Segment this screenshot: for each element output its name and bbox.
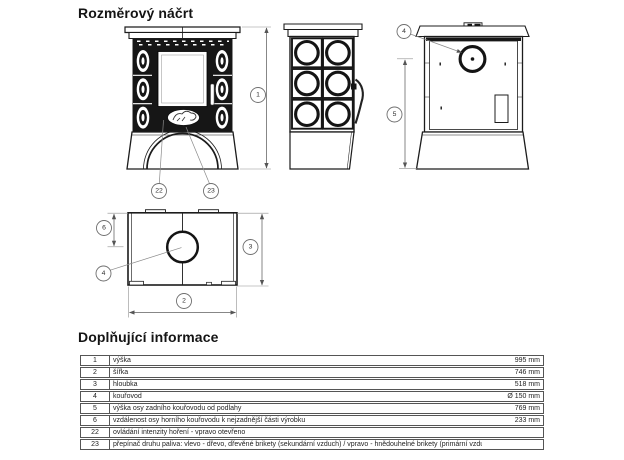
row-value: 746 mm	[482, 367, 544, 378]
top-foot-left	[130, 281, 144, 285]
front-base	[127, 130, 238, 169]
row-value: 769 mm	[482, 403, 544, 414]
row-label: kouřovod	[110, 391, 482, 402]
info-row: 5 výška osy zadního kouřovodu od podlahy…	[80, 403, 544, 414]
info-row: 6 vzdálenost osy horního kouřovodu k nej…	[80, 415, 544, 426]
door-glass	[158, 52, 207, 107]
row-number: 6	[80, 415, 110, 426]
callout-5-label: 5	[393, 111, 397, 118]
front-crown	[125, 27, 240, 39]
dimension-3-depth: 3	[237, 213, 269, 286]
callout-4-label: 4	[102, 270, 106, 277]
row-number: 2	[80, 367, 110, 378]
dimension-5-flue-height: 5	[387, 59, 417, 169]
front-tile-column-left	[133, 47, 153, 132]
callout-4-label: 4	[402, 28, 406, 35]
back-top-band	[426, 38, 521, 42]
top-view: 4 6 3 2	[96, 210, 269, 318]
back-flue-outlet	[460, 47, 485, 72]
front-tile-column-right	[212, 47, 232, 132]
side-view	[284, 24, 363, 169]
info-section-title: Doplňující informace	[78, 329, 218, 345]
info-table: 1 výška 995 mm 2 šířka 746 mm 3 hloubka …	[80, 354, 544, 451]
back-crown	[416, 26, 529, 37]
row-number: 1	[80, 355, 110, 366]
callout-23-label: 23	[207, 188, 215, 195]
row-number: 23	[80, 439, 110, 450]
row-number: 22	[80, 427, 110, 438]
info-row: 3 hloubka 518 mm	[80, 379, 544, 390]
info-table-body: 1 výška 995 mm 2 šířka 746 mm 3 hloubka …	[80, 355, 544, 450]
row-label: šířka	[110, 367, 482, 378]
row-number: 4	[80, 391, 110, 402]
row-label: ovládání intenzity hoření - vpravo otevř…	[110, 427, 482, 438]
back-view: 4 5	[387, 23, 529, 169]
row-value: 995 mm	[482, 355, 544, 366]
row-number: 5	[80, 403, 110, 414]
row-label: hloubka	[110, 379, 482, 390]
row-label: výška osy zadního kouřovodu od podlahy	[110, 403, 482, 414]
dimensional-drawing: 1 22 23	[0, 0, 624, 335]
front-emblem	[168, 110, 200, 126]
callout-3-label: 3	[249, 244, 253, 251]
row-value	[482, 439, 544, 450]
door-handle	[211, 84, 215, 105]
row-value: 233 mm	[482, 415, 544, 426]
row-number: 3	[80, 379, 110, 390]
top-foot-right	[222, 281, 236, 285]
dimension-1-height: 1	[240, 27, 271, 169]
row-value	[482, 427, 544, 438]
row-label: přepínač druhu paliva: vlevo - dřevo, dř…	[110, 439, 482, 450]
front-view: 1 22 23	[125, 27, 271, 199]
callout-6-label: 6	[102, 225, 106, 232]
dimension-6-flue-offset: 6	[97, 213, 129, 247]
info-row: 1 výška 995 mm	[80, 355, 544, 366]
side-crown	[284, 24, 362, 37]
callout-22-label: 22	[155, 188, 163, 195]
row-value: Ø 150 mm	[482, 391, 544, 402]
top-small-tab	[207, 282, 212, 285]
top-flue-outlet	[167, 232, 198, 263]
row-value: 518 mm	[482, 379, 544, 390]
row-label: vzdálenost osy horního kouřovodu k nejza…	[110, 415, 482, 426]
side-base	[290, 132, 354, 169]
dimension-2-width: 2	[129, 287, 237, 318]
callout-2-label: 2	[182, 298, 186, 305]
front-frieze	[133, 39, 232, 47]
info-row: 2 šířka 746 mm	[80, 367, 544, 378]
callout-1-label: 1	[256, 92, 260, 99]
back-air-opening	[495, 95, 508, 123]
product-spec-sheet: Rozměrový náčrt	[0, 0, 624, 460]
info-row: 22 ovládání intenzity hoření - vpravo ot…	[80, 427, 544, 438]
info-row: 4 kouřovod Ø 150 mm	[80, 391, 544, 402]
row-label: výška	[110, 355, 482, 366]
back-base	[417, 132, 529, 169]
info-row: 23 přepínač druhu paliva: vlevo - dřevo,…	[80, 439, 544, 450]
